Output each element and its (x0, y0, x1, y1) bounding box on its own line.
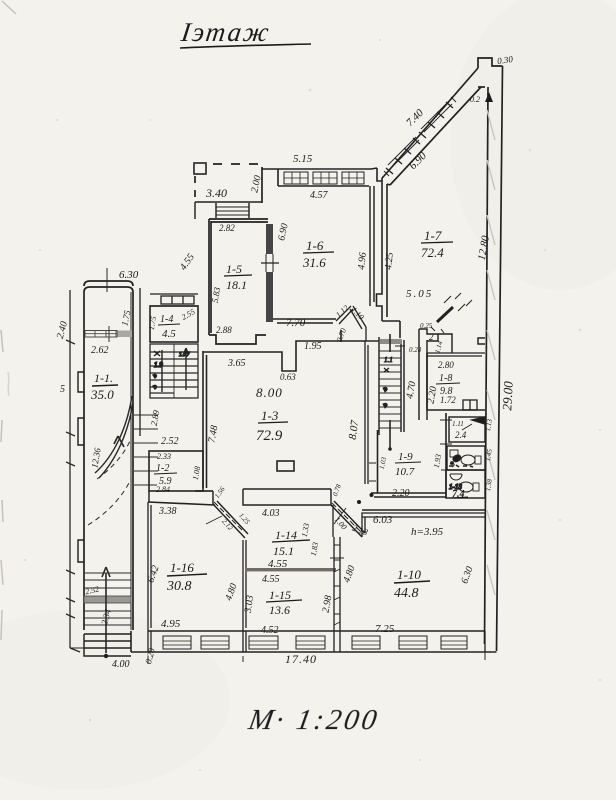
svg-text:1-8: 1-8 (439, 373, 452, 384)
svg-text:4.00: 4.00 (112, 659, 130, 670)
svg-text:35.0: 35.0 (90, 387, 114, 402)
svg-text:0.28: 0.28 (409, 346, 422, 354)
svg-text:1-2: 1-2 (156, 463, 169, 474)
svg-text:4.95: 4.95 (161, 618, 181, 630)
svg-text:2: 2 (429, 332, 434, 342)
svg-text:4.5: 4.5 (162, 328, 176, 340)
svg-text:72.9: 72.9 (256, 428, 283, 444)
svg-text:5: 5 (60, 384, 65, 395)
svg-text:1-9: 1-9 (398, 451, 413, 463)
svg-text:2.4: 2.4 (455, 430, 467, 440)
svg-text:3.65: 3.65 (227, 358, 246, 369)
svg-text:1-4: 1-4 (160, 314, 173, 325)
svg-text:4.96: 4.96 (356, 252, 369, 271)
svg-text:2.52: 2.52 (161, 436, 179, 447)
svg-text:7.25: 7.25 (375, 623, 395, 635)
svg-text:29.00: 29.00 (499, 380, 516, 410)
svg-text:4.57: 4.57 (310, 190, 329, 201)
svg-text:10.7: 10.7 (395, 466, 415, 478)
svg-text:1-3: 1-3 (261, 408, 279, 423)
svg-text:18.1: 18.1 (226, 278, 247, 292)
svg-text:17.40: 17.40 (285, 652, 317, 666)
svg-text:3.38: 3.38 (158, 506, 177, 517)
svg-text:1-6: 1-6 (306, 238, 324, 253)
svg-text:1.95: 1.95 (304, 341, 322, 352)
svg-text:6.30: 6.30 (119, 269, 139, 281)
svg-text:3.40: 3.40 (205, 186, 227, 200)
svg-text:7.70: 7.70 (286, 317, 306, 329)
svg-text:1-10: 1-10 (397, 567, 421, 582)
svg-text:31.6: 31.6 (302, 255, 326, 270)
svg-text:1.77: 1.77 (179, 352, 191, 358)
svg-text:4.55: 4.55 (262, 574, 280, 585)
svg-text:4.03: 4.03 (262, 508, 280, 519)
svg-text:2.20: 2.20 (392, 488, 410, 499)
svg-text:72.4: 72.4 (421, 245, 444, 260)
svg-text:5.05: 5.05 (406, 288, 433, 300)
svg-text:2.80: 2.80 (438, 360, 454, 370)
svg-text:0.63: 0.63 (280, 372, 296, 382)
svg-text:1-1.: 1-1. (94, 371, 113, 385)
svg-text:1-15: 1-15 (269, 588, 291, 602)
svg-text:2.33: 2.33 (157, 452, 171, 461)
svg-text:13.6: 13.6 (269, 603, 290, 617)
svg-text:15.1: 15.1 (273, 544, 294, 558)
svg-text:1.72: 1.72 (440, 395, 456, 405)
svg-text:5.15: 5.15 (293, 153, 313, 165)
svg-text:44.8: 44.8 (394, 586, 419, 601)
svg-text:2.82: 2.82 (219, 223, 235, 233)
svg-text:8.00: 8.00 (256, 385, 283, 400)
svg-text:1-14: 1-14 (275, 528, 297, 542)
svg-text:1.9: 1.9 (154, 361, 163, 369)
svg-text:0.25: 0.25 (420, 322, 433, 330)
svg-text:h=3.95: h=3.95 (411, 526, 444, 538)
svg-text:30.8: 30.8 (166, 579, 192, 594)
svg-text:1-16: 1-16 (170, 560, 194, 575)
svg-text:Іэтаж: Іэтаж (178, 17, 272, 47)
svg-text:1-7: 1-7 (424, 228, 442, 243)
svg-text:2.62: 2.62 (91, 345, 109, 356)
svg-text:1.1: 1.1 (384, 356, 393, 364)
svg-text:2.88: 2.88 (216, 325, 232, 335)
svg-text:2.84: 2.84 (156, 485, 170, 494)
svg-text:М· 1:200: М· 1:200 (245, 704, 382, 736)
svg-text:1-5: 1-5 (226, 262, 242, 276)
svg-text:0.2: 0.2 (470, 95, 480, 104)
svg-text:4.25: 4.25 (383, 252, 396, 271)
svg-text:6.03: 6.03 (373, 514, 393, 526)
svg-text:7.4: 7.4 (452, 489, 465, 500)
svg-text:1.11: 1.11 (452, 420, 464, 428)
